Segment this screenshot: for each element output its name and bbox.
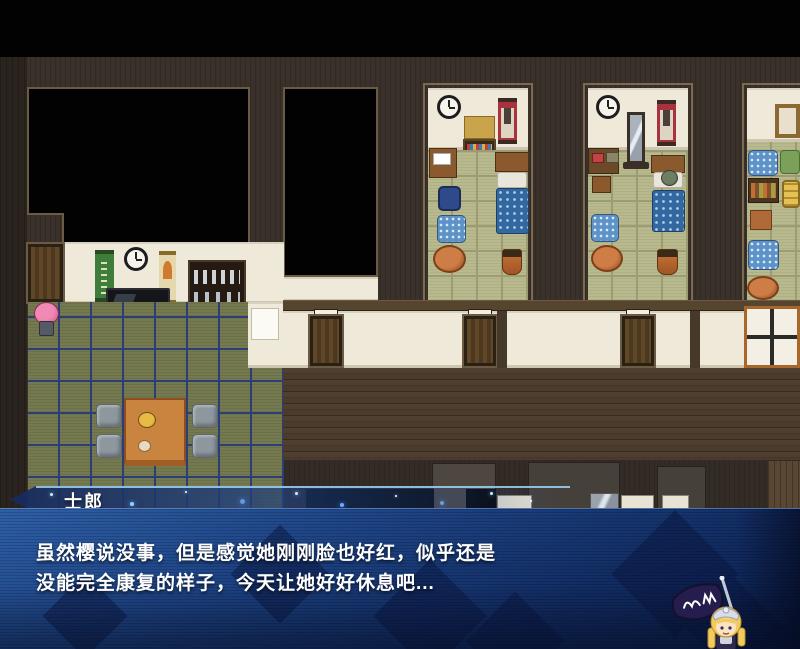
hall-door-2: [464, 316, 496, 366]
sparkle: [50, 493, 53, 496]
door-transom: [626, 309, 650, 315]
hall-door-1: [310, 316, 342, 366]
living-wall-clock: [124, 247, 148, 271]
corridor-floor: [283, 368, 800, 460]
bed-pillow: [497, 172, 527, 188]
sparkle: [240, 499, 245, 504]
bedroom2-hanging-scroll: [657, 100, 676, 146]
standing-mirror: [627, 112, 645, 164]
sparkle: [440, 501, 444, 505]
floor-pillow: [437, 215, 466, 243]
round-table: [591, 245, 623, 272]
seat-cushion: [192, 434, 218, 458]
door-transom: [468, 309, 492, 315]
shoji-sliding-door: [744, 306, 800, 368]
portrait-figure: [163, 261, 172, 279]
cabinet-bottles: [194, 270, 240, 284]
paper-lamp: [782, 180, 800, 208]
photo-frame: [592, 153, 604, 163]
wall-divider: [497, 311, 507, 368]
green-pillow: [780, 150, 800, 174]
right-wood-panel: [768, 461, 800, 508]
bedroom1-clock: [437, 95, 461, 119]
unlit-room-notch: [62, 213, 250, 244]
sparkle: [490, 492, 493, 495]
bedroom2-clock: [596, 95, 620, 119]
seat-cushion: [96, 404, 122, 428]
book-shelf: [748, 178, 779, 203]
game-screen: 士郎 虽然樱说没事，但是感觉她刚刚脸也好红，似乎还是 没能完全康复的样子，今天让…: [0, 0, 800, 649]
floor-pillow: [748, 240, 779, 270]
player-character-body: [39, 321, 54, 336]
low-table: [124, 398, 186, 466]
small-frame: [750, 210, 772, 230]
wall-poster: [251, 308, 279, 340]
dresser: [588, 148, 619, 174]
sparkle: [530, 500, 532, 502]
sleeping-character-head: [661, 170, 678, 186]
ceiling-darkness: [0, 0, 800, 57]
wall-divider: [690, 311, 700, 368]
sparkle: [395, 495, 397, 497]
book-row: [751, 183, 776, 198]
banner-top-edge: [36, 486, 570, 488]
unlit-room-tall: [283, 87, 378, 277]
hallway: [248, 300, 800, 368]
desk-paper: [433, 153, 451, 165]
mirror-slab: [590, 493, 619, 509]
plant-pot: [657, 249, 678, 275]
floor-pillow: [748, 150, 778, 176]
door-transom: [314, 309, 338, 315]
stool: [592, 176, 611, 193]
hall-wall: [283, 311, 800, 368]
sparkle: [130, 502, 134, 506]
plant-pot: [502, 249, 522, 275]
dialogue-box[interactable]: 虽然樱说没事，但是感觉她刚刚脸也好红，似乎还是 没能完全康复的样子，今天让她好好…: [0, 508, 800, 649]
bedroom-1: [425, 85, 531, 300]
bedroom1-hanging-scroll: [498, 98, 517, 144]
living-room: [28, 242, 284, 508]
white-slab: [662, 495, 689, 509]
teacup: [138, 440, 151, 452]
bed-headboard: [495, 152, 529, 172]
round-table: [747, 276, 779, 300]
wall-under-unlit-room: [283, 277, 378, 302]
framed-window: [775, 104, 800, 138]
sparkle: [185, 491, 187, 493]
white-slab: [621, 495, 654, 509]
floor-pillow: [591, 214, 619, 242]
left-wall-strip: [0, 57, 27, 510]
dialogue-line-2: 没能完全康复的样子，今天让她好好休息吧...: [36, 569, 756, 599]
chibi-flag-mascot-sprite: [660, 576, 775, 649]
cupboard: [464, 116, 495, 139]
round-table: [433, 245, 466, 273]
living-room-door: [28, 244, 63, 302]
desk-chair: [438, 186, 461, 211]
bedroom-2: [585, 85, 691, 300]
unlit-room-large: [27, 87, 250, 215]
bed-blanket: [496, 188, 529, 234]
dialogue-text: 虽然樱说没事，但是感觉她刚刚脸也好红，似乎还是 没能完全康复的样子，今天让她好好…: [36, 539, 756, 599]
teapot: [138, 412, 156, 428]
sparkle: [295, 492, 298, 495]
photo-frame: [606, 152, 619, 163]
bed-blanket: [652, 190, 685, 232]
sparkle: [340, 503, 344, 507]
hall-beam: [283, 300, 800, 311]
seat-cushion: [192, 404, 218, 428]
seat-cushion: [96, 434, 122, 458]
hall-door-3: [622, 316, 654, 366]
bedroom-3: [744, 85, 800, 300]
mirror-base: [623, 162, 649, 169]
dialogue-line-1: 虽然樱说没事，但是感觉她刚刚脸也好红，似乎还是: [36, 539, 756, 569]
